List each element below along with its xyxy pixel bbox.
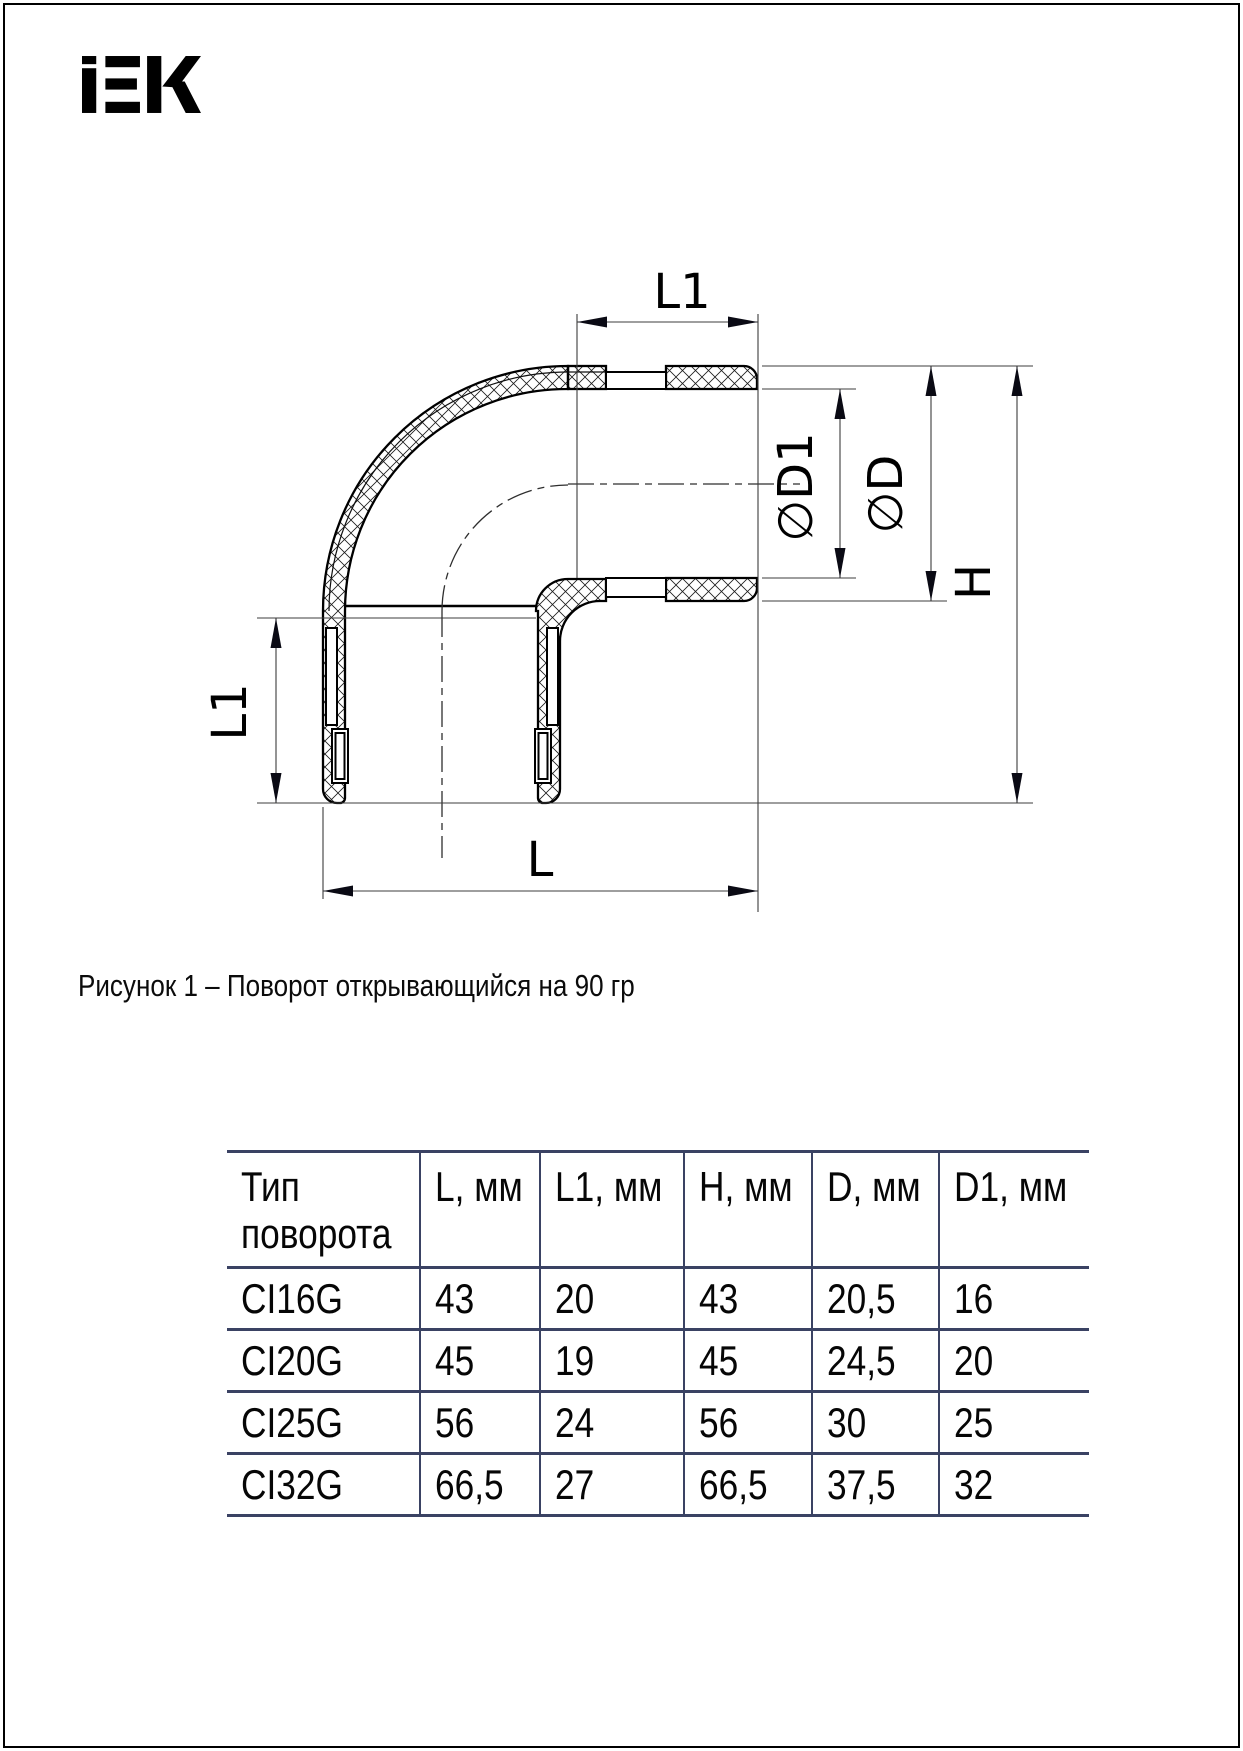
cell-h: 56 [684, 1392, 811, 1454]
cell-h: 43 [684, 1268, 811, 1330]
dim-label-l: L [527, 832, 554, 888]
dim-label-l1-top: L1 [653, 264, 710, 320]
bottom-latch-slot [606, 578, 666, 597]
centerlines [442, 484, 800, 858]
dim-label-d: ∅D [858, 455, 914, 534]
cell-l1: 24 [540, 1392, 684, 1454]
cell-type: CI20G [227, 1330, 420, 1392]
header-l1: L1, мм [540, 1152, 684, 1268]
elbow-section [257, 366, 757, 803]
header-d: D, мм [812, 1152, 939, 1268]
cell-d: 20,5 [812, 1268, 939, 1330]
bottom-wall-band-2 [666, 578, 757, 601]
cell-d1: 16 [939, 1268, 1089, 1330]
cell-d: 30 [812, 1392, 939, 1454]
figure-caption: Рисунок 1 – Поворот открывающийся на 90 … [78, 968, 741, 1004]
cell-d1: 20 [939, 1330, 1089, 1392]
header-type: Тип поворота [227, 1152, 420, 1268]
cell-d1: 32 [939, 1454, 1089, 1516]
cell-d: 37,5 [812, 1454, 939, 1516]
cell-d: 24,5 [812, 1330, 939, 1392]
header-d1: D1, мм [939, 1152, 1089, 1268]
cell-l1: 19 [540, 1330, 684, 1392]
technical-drawing: L1 L1 L ∅D1 ∅D H [0, 0, 1243, 960]
dim-label-l1-left: L1 [202, 683, 258, 740]
table-row: CI20G 45 19 45 24,5 20 [227, 1330, 1089, 1392]
header-l: L, мм [420, 1152, 540, 1268]
left-latch-clip [332, 729, 348, 783]
cell-l: 43 [420, 1268, 540, 1330]
header-h: H, мм [684, 1152, 811, 1268]
cell-h: 66,5 [684, 1454, 811, 1516]
dim-label-h: H [946, 564, 1002, 600]
cell-l1: 20 [540, 1268, 684, 1330]
dim-label-d1: ∅D1 [768, 432, 824, 541]
datasheet-page: L1 L1 L ∅D1 ∅D H Рисунок 1 – Поворот отк… [0, 0, 1243, 1751]
figure-caption-text: Рисунок 1 – Поворот открывающийся на 90 … [78, 968, 635, 1004]
spec-table: Тип поворота L, мм L1, мм H, мм D, мм D1… [227, 1150, 1089, 1517]
cell-d1: 25 [939, 1392, 1089, 1454]
cell-h: 45 [684, 1330, 811, 1392]
right-latch-clip [535, 729, 551, 783]
right-sleeve-channel [547, 628, 558, 725]
cell-l: 56 [420, 1392, 540, 1454]
cell-l: 66,5 [420, 1454, 540, 1516]
table-header-row: Тип поворота L, мм L1, мм H, мм D, мм D1… [227, 1152, 1089, 1268]
top-wall-band-1 [568, 366, 606, 389]
table-row: CI16G 43 20 43 20,5 16 [227, 1268, 1089, 1330]
elbow-bend-and-left-wall [323, 366, 568, 803]
cell-l1: 27 [540, 1454, 684, 1516]
extension-lines [257, 314, 1033, 912]
cell-l: 45 [420, 1330, 540, 1392]
left-sleeve-channel [326, 628, 337, 725]
cell-type: CI32G [227, 1454, 420, 1516]
top-wall-band-2 [666, 366, 757, 389]
table-row: CI25G 56 24 56 30 25 [227, 1392, 1089, 1454]
table-row: CI32G 66,5 27 66,5 37,5 32 [227, 1454, 1089, 1516]
top-latch-slot [606, 372, 666, 389]
cell-type: CI25G [227, 1392, 420, 1454]
dimension-labels: L1 L1 L ∅D1 ∅D H [202, 264, 1002, 888]
cell-type: CI16G [227, 1268, 420, 1330]
